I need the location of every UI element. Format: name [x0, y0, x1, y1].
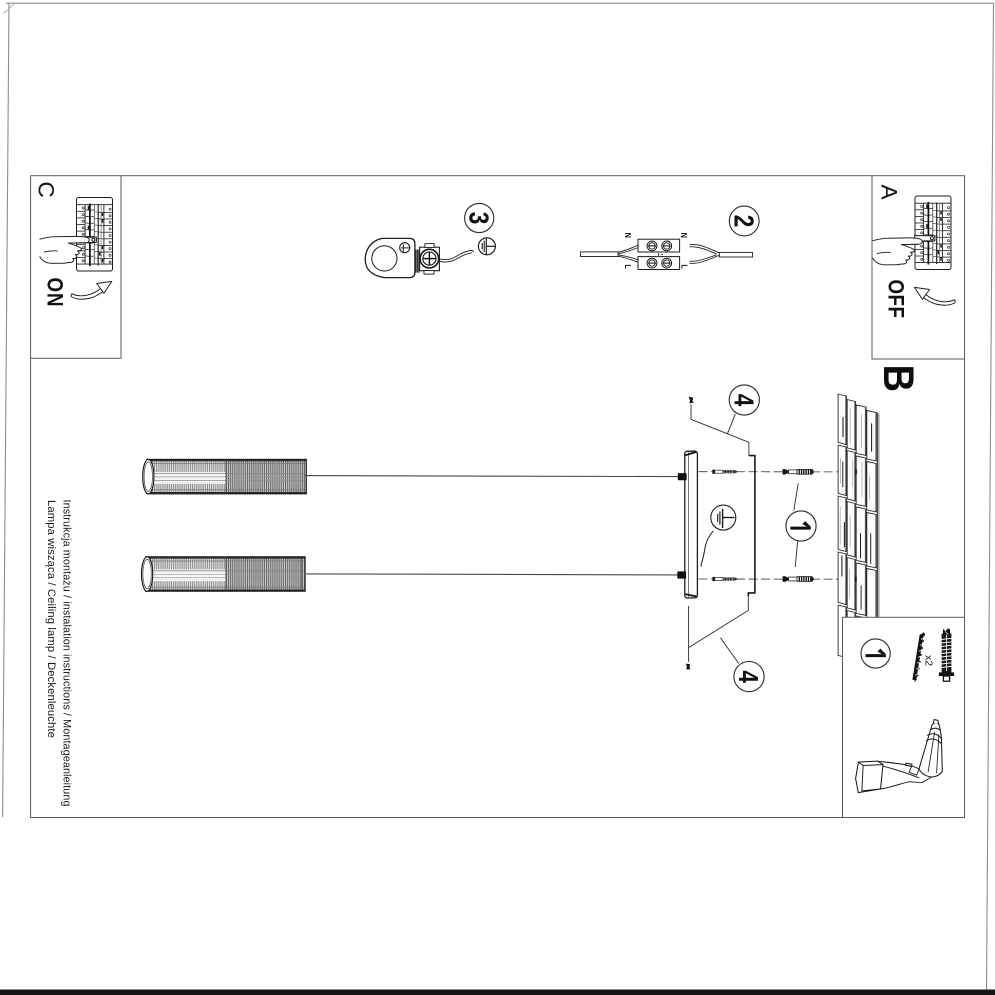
- svg-text:4: 4: [728, 394, 759, 407]
- svg-text:B: B: [874, 365, 923, 392]
- svg-text:N: N: [679, 233, 689, 238]
- svg-text:Lampa wisząca / Ceiling lamp /: Lampa wisząca / Ceiling lamp / Deckenleu…: [45, 500, 57, 738]
- svg-text:2: 2: [728, 215, 759, 228]
- svg-text:N: N: [623, 233, 633, 238]
- svg-text:A: A: [877, 185, 902, 200]
- svg-text:3: 3: [463, 212, 494, 225]
- svg-text:C: C: [34, 182, 59, 198]
- svg-text:x2: x2: [923, 655, 935, 666]
- svg-text:OFF: OFF: [883, 280, 907, 319]
- svg-text:Instrukcja montażu / instalati: Instrukcja montażu / instalation instruc…: [60, 500, 72, 807]
- svg-text:L: L: [623, 264, 633, 269]
- svg-text:L: L: [679, 264, 689, 269]
- svg-text:ON: ON: [42, 278, 66, 308]
- svg-text:4: 4: [733, 670, 764, 683]
